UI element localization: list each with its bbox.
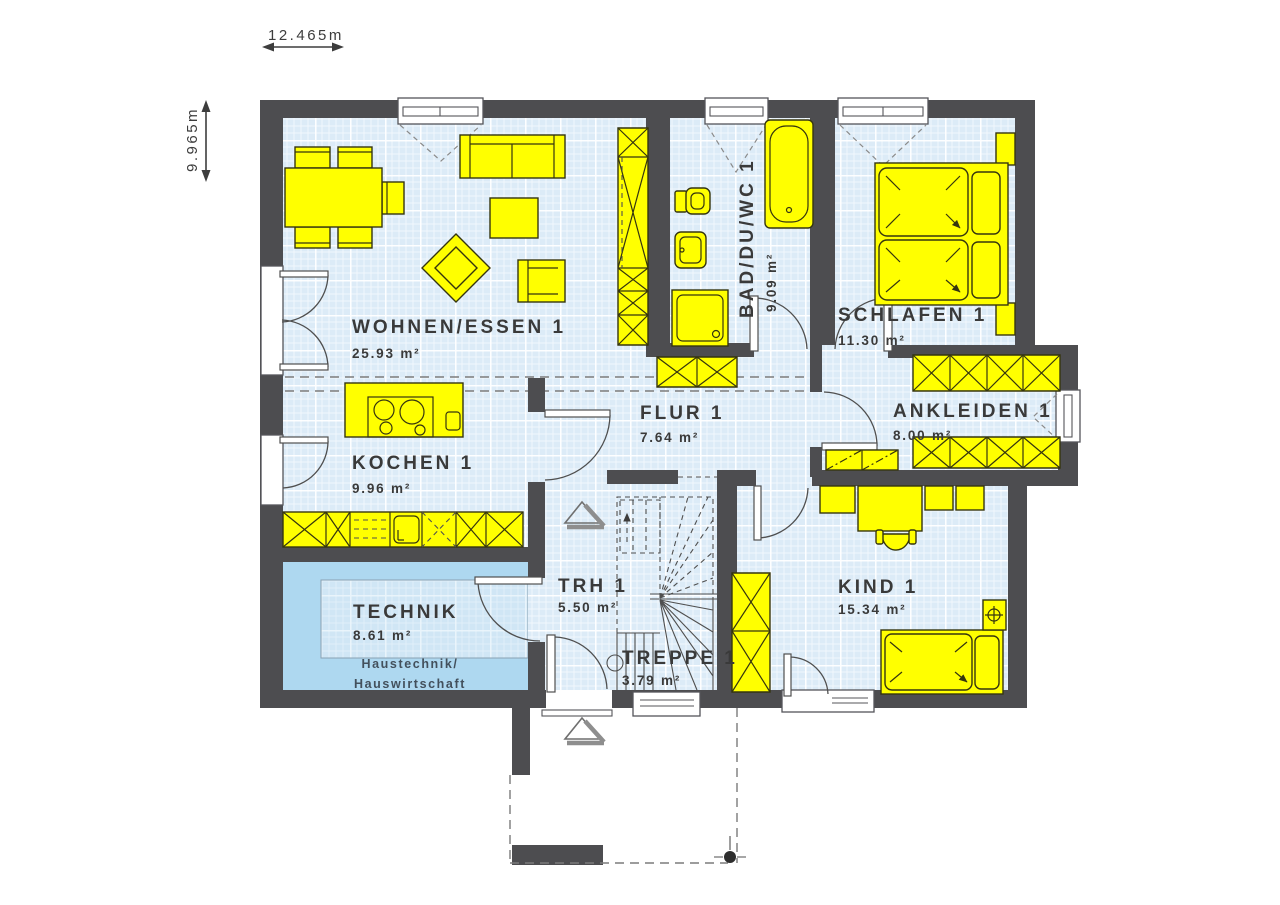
room-area-technik: 8.61 m² <box>353 628 412 643</box>
hall-wardrobe <box>657 357 737 387</box>
room-area-trh: 5.50 m² <box>558 600 617 615</box>
room-name-kind: KIND 1 <box>838 577 918 598</box>
coffee-table <box>490 198 538 238</box>
room-area-schlafen: 11.30 m² <box>838 333 906 348</box>
exterior-elements <box>510 708 746 865</box>
room-area-flur: 7.64 m² <box>640 430 699 445</box>
shower <box>672 290 728 346</box>
window-stair-bottom <box>633 692 700 716</box>
technik-note-line1: Haustechnik/ <box>361 657 458 671</box>
room-name-wohnen: WOHNEN/ESSEN 1 <box>352 317 566 338</box>
living-shelf-column <box>618 128 648 345</box>
technik-note-line2: Hauswirtschaft <box>354 677 466 691</box>
room-name-treppe: TREPPE 1 <box>622 648 738 669</box>
room-area-bad: 9.09 m² <box>764 253 779 312</box>
room-area-wohnen: 25.93 m² <box>352 346 420 361</box>
dimension-width-label: 12.465m <box>268 27 344 44</box>
room-name-technik: TECHNIK <box>353 602 458 623</box>
room-name-ankleiden: ANKLEIDEN 1 <box>893 401 1053 422</box>
dimension-width: 12.465m <box>262 27 344 52</box>
dimension-height-label: 9.965m <box>184 107 201 172</box>
floor-plan-drawing: 12.465m 9.965m WOHNEN/ESSEN 1 25.93 m² K… <box>0 0 1280 905</box>
room-name-flur: FLUR 1 <box>640 403 725 424</box>
entrance-marker-outside <box>565 718 604 743</box>
dressing-wardrobe-top <box>913 355 1060 391</box>
room-name-kochen: KOCHEN 1 <box>352 453 474 474</box>
room-area-kind: 15.34 m² <box>838 602 906 617</box>
nightstand-lamp <box>983 600 1006 630</box>
sofa <box>460 135 565 178</box>
washbasin <box>675 232 706 268</box>
room-area-kochen: 9.96 m² <box>352 481 411 496</box>
dimension-height: 9.965m <box>184 100 211 182</box>
dressing-sideboard <box>826 450 898 470</box>
room-name-trh: TRH 1 <box>558 576 628 597</box>
toilet <box>675 188 710 214</box>
room-area-ankleiden: 8.00 m² <box>893 428 952 443</box>
child-bed <box>881 630 1003 694</box>
room-name-schlafen: SCHLAFEN 1 <box>838 305 987 326</box>
floor-plan-page: 12.465m 9.965m WOHNEN/ESSEN 1 25.93 m² K… <box>0 0 1280 905</box>
armchair <box>518 260 565 302</box>
kitchen-island <box>345 383 463 437</box>
child-wardrobe <box>732 573 770 692</box>
kitchen-counter <box>283 512 523 547</box>
bathtub <box>765 120 813 228</box>
room-area-treppe: 3.79 m² <box>622 673 681 688</box>
room-name-bad: BAD/DU/WC 1 <box>737 158 758 318</box>
